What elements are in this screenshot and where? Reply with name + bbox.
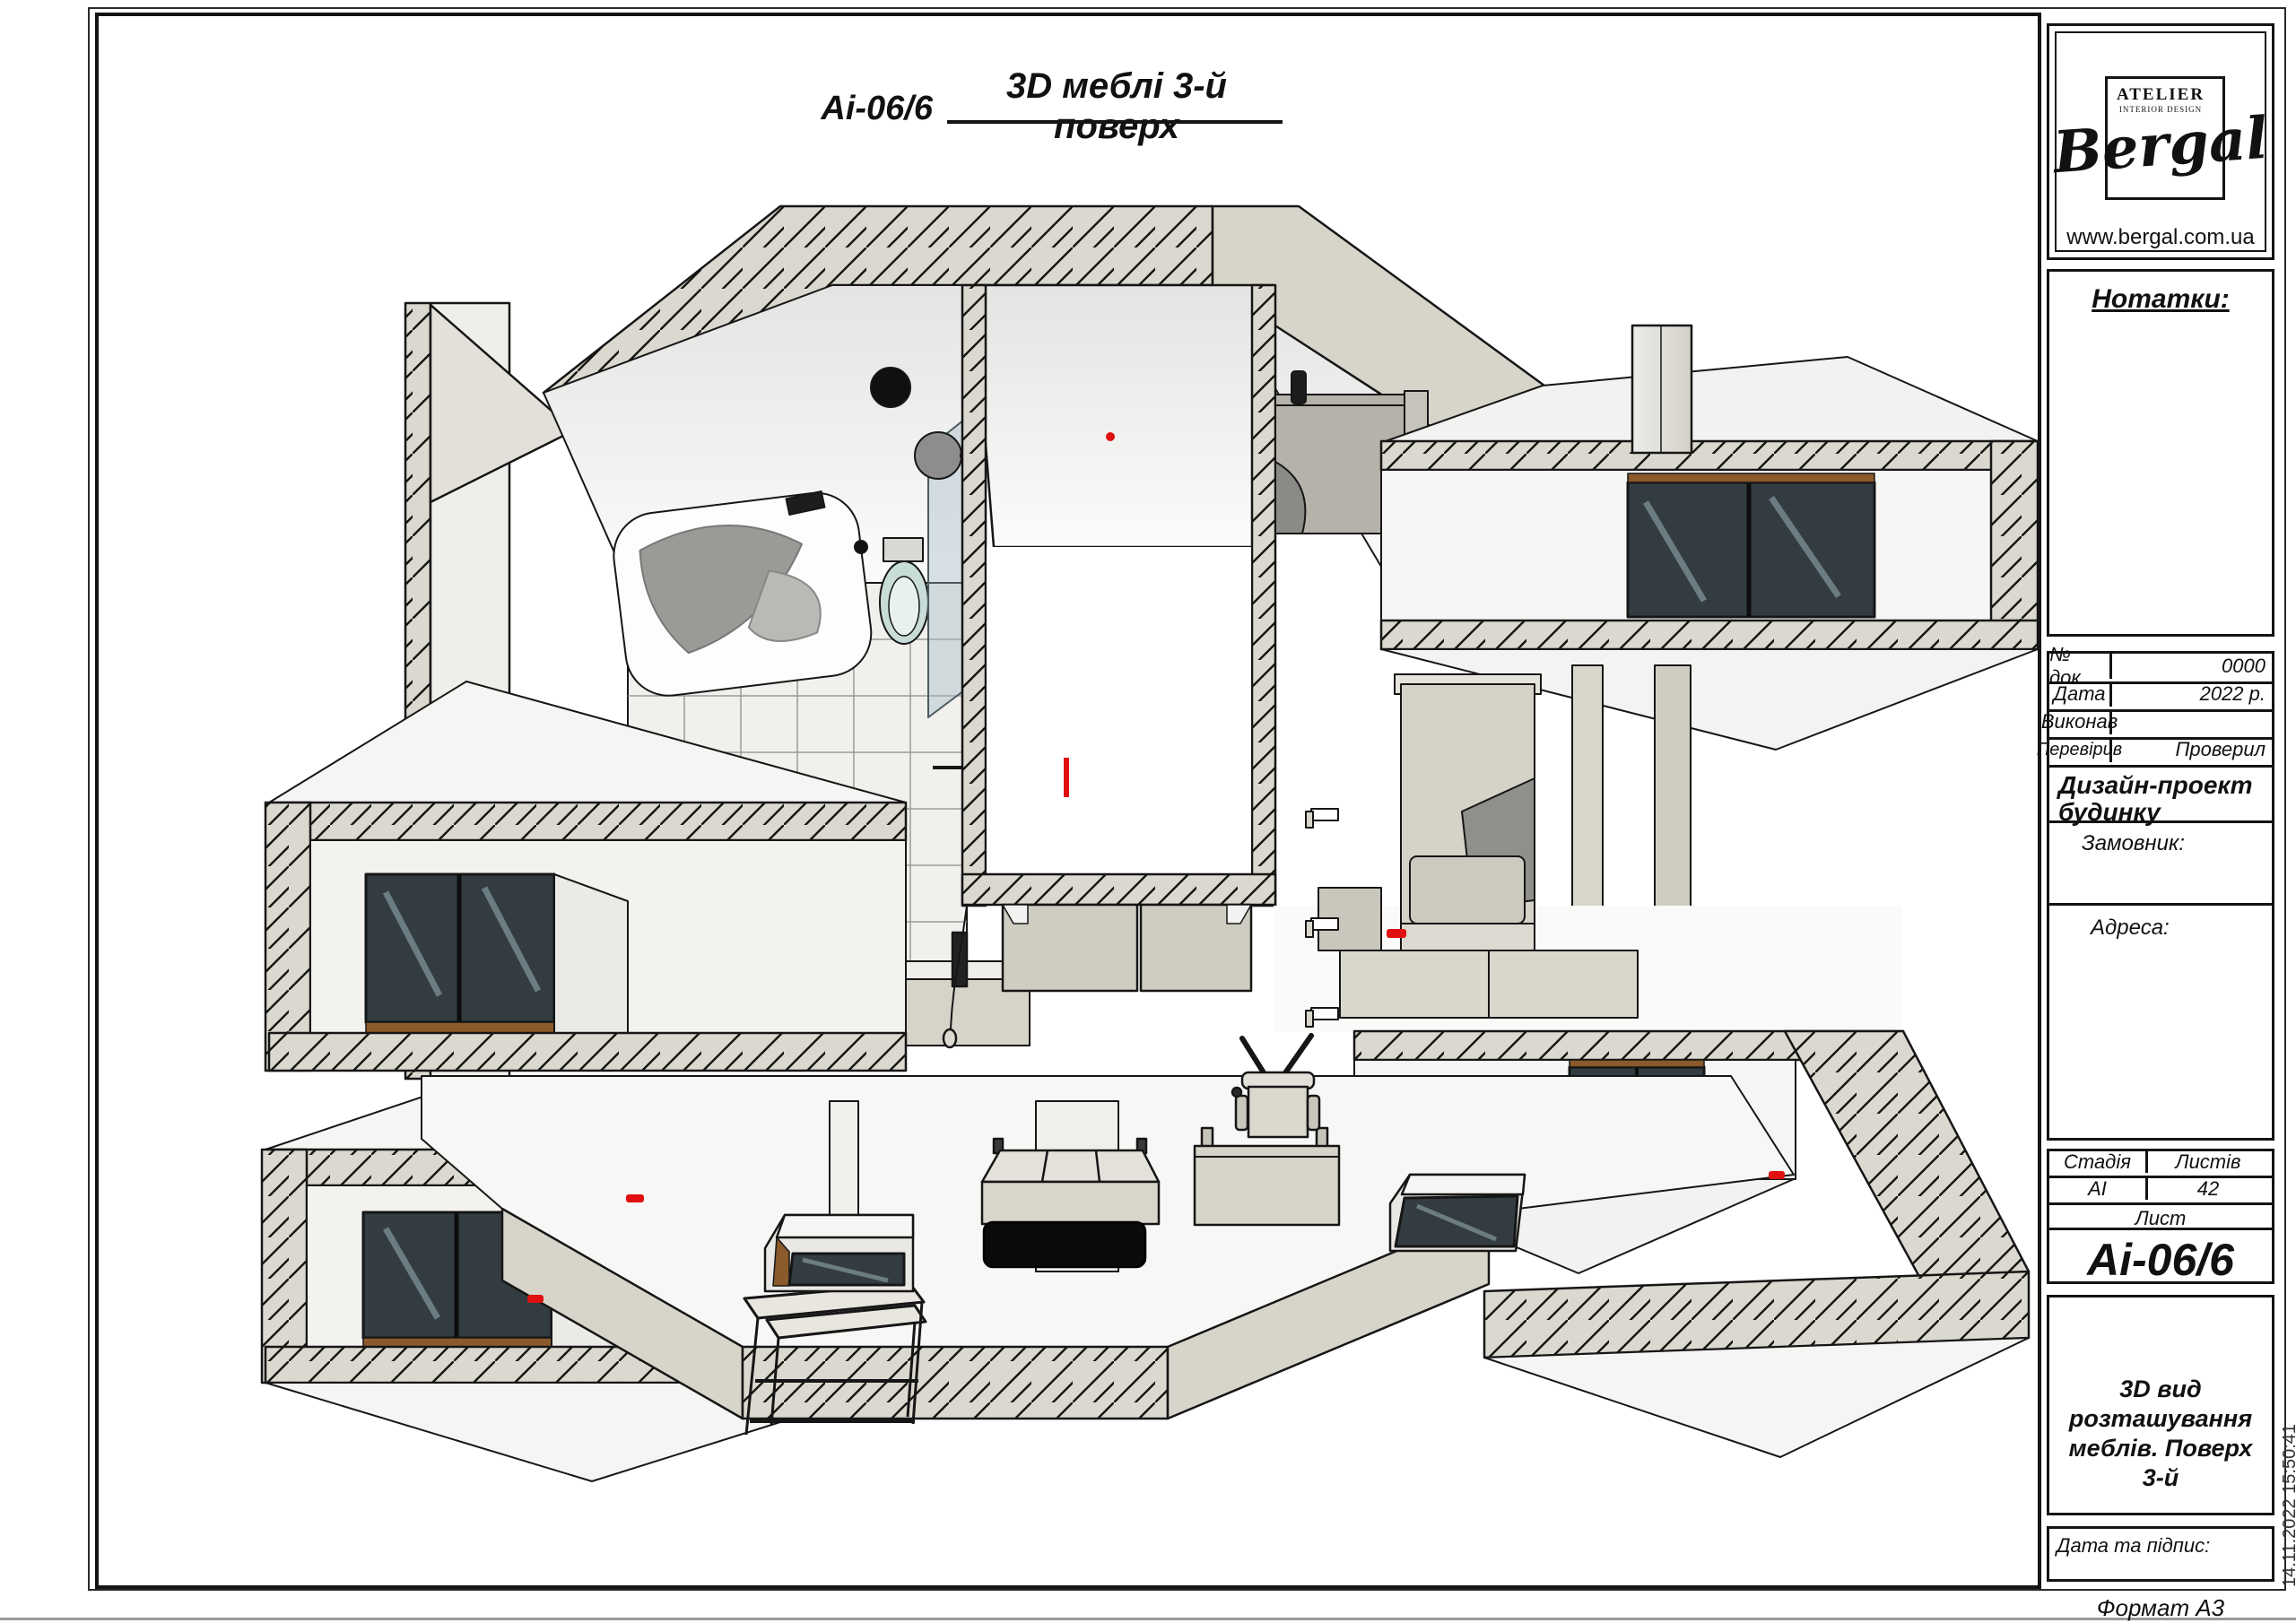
stamp-table: № док. 0000 Дата 2022 р. Виконав Перевір… <box>2047 651 2274 1141</box>
wardrobe <box>1632 325 1692 453</box>
stage-table: Стадія Листів АІ 42 Лист Аі-06/6 <box>2047 1149 2274 1284</box>
pendant-lamp <box>944 1029 956 1047</box>
stage-value: АІ <box>2049 1178 2148 1200</box>
logo-atelier: ATELIER <box>2049 85 2272 105</box>
notes-label: Нотатки: <box>2049 284 2272 315</box>
door-jamb <box>952 933 967 986</box>
logo-website[interactable]: www.bergal.com.ua <box>2049 225 2272 250</box>
bottle <box>1291 371 1306 404</box>
plot-timestamp: 14.11.2022 15:50:41 <box>2280 1424 2296 1587</box>
desk-chair <box>1232 1036 1319 1137</box>
sofa <box>982 1139 1159 1224</box>
stamp-row-value <box>2115 709 2266 734</box>
stamp-row-value: Проверил <box>2115 737 2266 762</box>
stair-shaft-group <box>944 285 1275 1047</box>
toilet <box>880 538 928 644</box>
sheet-title-code: Аі-06/6 <box>798 90 933 128</box>
window <box>1628 473 1874 617</box>
stamp-row-value: 0000 <box>2115 654 2266 679</box>
sheets-label: Листів <box>2151 1151 2266 1173</box>
logo-box: ATELIER INTERIOR DESIGN Bergal www.berga… <box>2047 23 2274 260</box>
sheet-label: Лист <box>2049 1207 2272 1230</box>
date-sign-box: Дата та підпис: <box>2047 1526 2274 1582</box>
title-underline <box>947 120 1283 124</box>
floorplan-3d-view <box>0 0 2296 1623</box>
ceiling-lamp <box>871 368 910 407</box>
floor-slab-section <box>962 874 1275 905</box>
stamp-row-label: № док. <box>2049 654 2112 679</box>
project-name: Дизайн-проект будинку <box>2058 772 2265 826</box>
stamp-row-label: Виконав <box>2049 709 2112 734</box>
address-label: Адреса: <box>2091 916 2170 941</box>
pillow <box>1410 856 1525 924</box>
window <box>366 874 554 1033</box>
drawing-sheet: Аі-06/6 3D меблі 3-й поверх ATELIER INTE… <box>0 0 2296 1623</box>
sheets-value: 42 <box>2151 1178 2266 1200</box>
stamp-row-value: 2022 р. <box>2115 681 2266 707</box>
customer-label: Замовник: <box>2082 831 2185 856</box>
toilet-brush <box>855 541 867 553</box>
notes-box: Нотатки: <box>2047 269 2274 637</box>
view-description: 3D вид розташування меблів. Поверх 3-й <box>2055 1375 2266 1493</box>
sheet-number: Аі-06/6 <box>2049 1234 2272 1286</box>
format-label: Формат А3 <box>2047 1594 2274 1622</box>
description-box: 3D вид розташування меблів. Поверх 3-й <box>2047 1295 2274 1515</box>
stamp-row-label: Дата <box>2049 681 2112 707</box>
page-title: 3D меблі 3-й поверх <box>942 66 1291 147</box>
date-sign-label: Дата та підпис: <box>2057 1534 2210 1558</box>
shower-head <box>915 432 961 479</box>
coffee-table <box>984 1222 1145 1267</box>
stamp-row-label: Перевірив <box>2049 737 2112 762</box>
bathtub <box>609 488 876 700</box>
right-floor-skylight <box>1390 1175 1525 1251</box>
stage-label: Стадія <box>2049 1151 2148 1173</box>
left-floor-skylight <box>765 1215 913 1291</box>
